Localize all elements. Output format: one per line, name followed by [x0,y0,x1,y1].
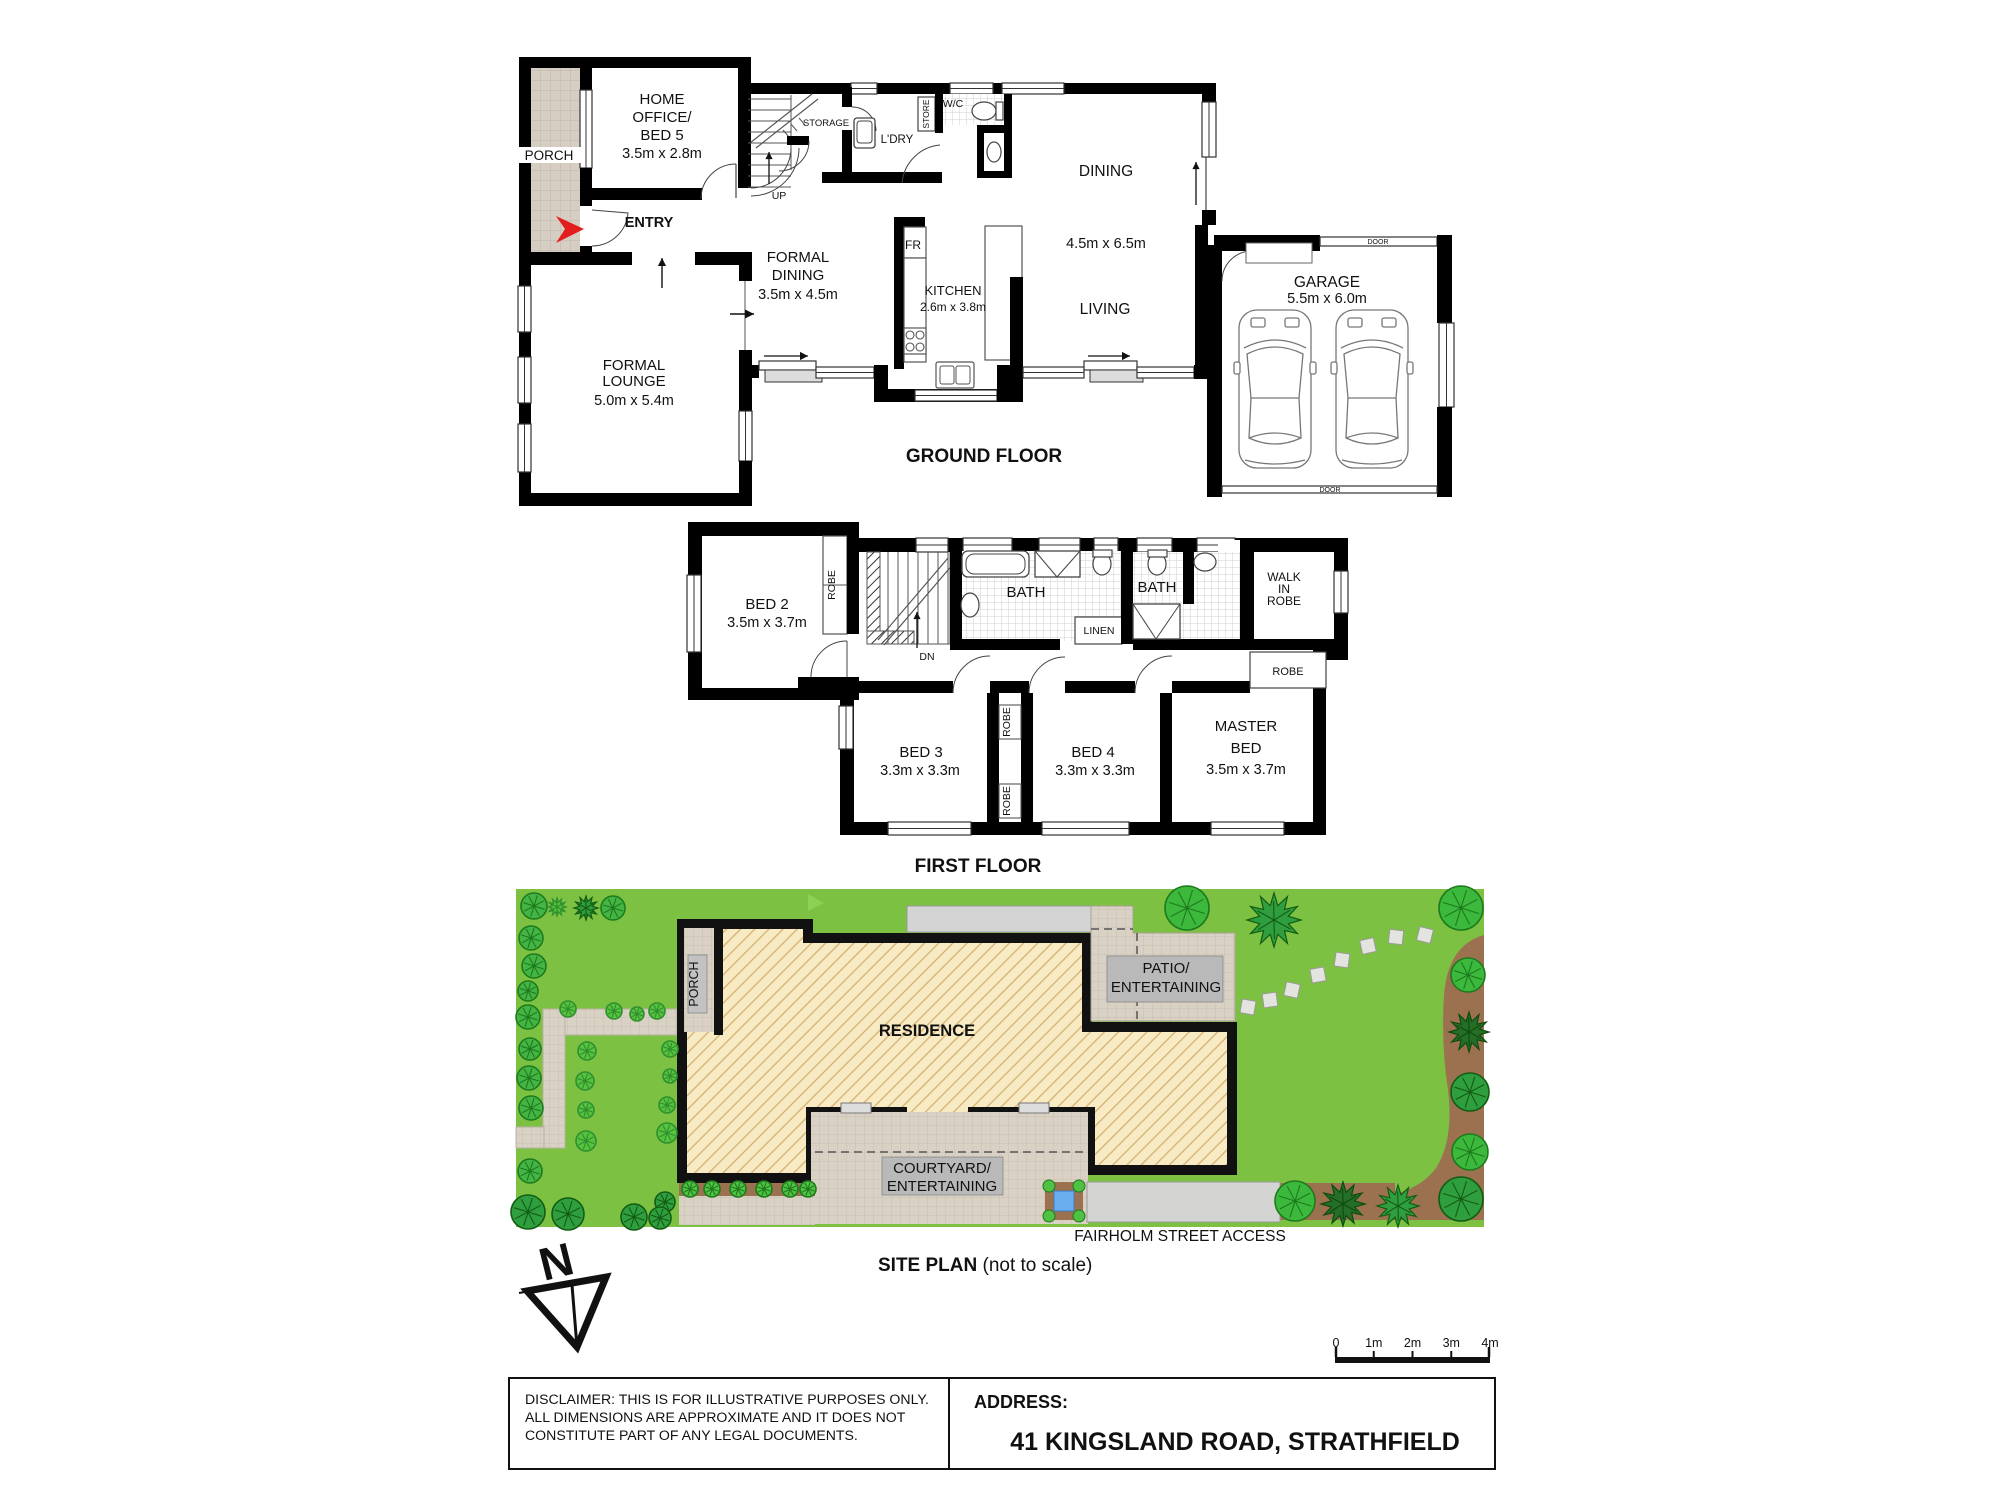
svg-text:5.0m x 5.4m: 5.0m x 5.4m [594,393,674,409]
svg-text:FR: FR [905,238,921,252]
svg-text:ENTRY: ENTRY [625,215,674,231]
svg-text:PORCH: PORCH [525,148,574,163]
svg-text:BATH: BATH [1007,584,1046,601]
svg-text:3.3m x 3.3m: 3.3m x 3.3m [1055,763,1135,779]
svg-text:ENTERTAINING: ENTERTAINING [887,1178,997,1195]
svg-text:GARAGE: GARAGE [1294,274,1360,291]
svg-text:2m: 2m [1404,1336,1421,1350]
svg-text:4m: 4m [1481,1336,1498,1350]
svg-text:HOME: HOME [640,91,685,108]
svg-text:L'DRY: L'DRY [881,134,914,146]
svg-text:3.5m x 2.8m: 3.5m x 2.8m [622,146,702,162]
svg-text:DINING: DINING [772,267,825,284]
svg-text:ADDRESS:: ADDRESS: [974,1392,1068,1412]
svg-text:3.5m x 4.5m: 3.5m x 4.5m [758,287,838,303]
svg-text:1m: 1m [1365,1336,1382,1350]
svg-text:PORCH: PORCH [687,961,701,1006]
svg-text:GROUND FLOOR: GROUND FLOOR [906,446,1062,467]
svg-text:BED 3: BED 3 [899,744,942,761]
svg-text:LIVING: LIVING [1080,301,1131,318]
svg-text:LINEN: LINEN [1084,625,1115,637]
svg-text:FIRST FLOOR: FIRST FLOOR [915,856,1042,877]
svg-text:OFFICE/: OFFICE/ [632,109,692,126]
svg-text:BED: BED [1231,740,1262,757]
svg-text:W/C: W/C [943,98,964,110]
svg-text:STORAGE: STORAGE [803,118,849,129]
svg-text:41 KINGSLAND ROAD, STRATHFIELD: 41 KINGSLAND ROAD, STRATHFIELD [1010,1428,1460,1456]
svg-text:FORMAL: FORMAL [767,249,830,266]
svg-text:ENTERTAINING: ENTERTAINING [1111,979,1221,996]
svg-text:BED 5: BED 5 [640,127,683,144]
svg-text:DINING: DINING [1079,163,1133,180]
svg-text:DOOR: DOOR [1320,487,1341,494]
svg-text:3.5m x 3.7m: 3.5m x 3.7m [1206,762,1286,778]
svg-text:LOUNGE: LOUNGE [602,373,665,390]
svg-text:3m: 3m [1443,1336,1460,1350]
svg-text:DN: DN [919,651,934,663]
svg-text:5.5m x 6.0m: 5.5m x 6.0m [1287,291,1367,307]
svg-text:ROBE: ROBE [1001,707,1013,737]
svg-text:FAIRHOLM STREET ACCESS: FAIRHOLM STREET ACCESS [1074,1228,1286,1245]
svg-text:COURTYARD/: COURTYARD/ [893,1160,992,1177]
svg-text:UP: UP [772,190,787,202]
svg-text:ALL DIMENSIONS ARE APPROXIMATE: ALL DIMENSIONS ARE APPROXIMATE AND IT DO… [525,1409,906,1425]
svg-text:SITE PLAN (not to scale): SITE PLAN (not to scale) [878,1255,1092,1276]
svg-text:3.3m x 3.3m: 3.3m x 3.3m [880,763,960,779]
svg-text:BED 2: BED 2 [745,596,788,613]
svg-text:PATIO/: PATIO/ [1143,960,1191,977]
svg-text:3.5m x 3.7m: 3.5m x 3.7m [727,615,807,631]
svg-text:DISCLAIMER: THIS IS FOR ILLUST: DISCLAIMER: THIS IS FOR ILLUSTRATIVE PUR… [525,1391,929,1407]
svg-text:ROBE: ROBE [1272,666,1303,678]
svg-text:BATH: BATH [1138,579,1177,596]
svg-text:STORE: STORE [921,99,931,128]
svg-text:DOOR: DOOR [1368,239,1389,246]
svg-text:FORMAL: FORMAL [603,357,666,374]
svg-text:ROBE: ROBE [1267,594,1301,608]
svg-text:2.6m x 3.8m: 2.6m x 3.8m [920,300,986,314]
svg-text:RESIDENCE: RESIDENCE [879,1022,975,1040]
svg-text:ROBE: ROBE [826,570,838,600]
svg-text:ROBE: ROBE [1001,786,1013,816]
svg-text:BED 4: BED 4 [1071,744,1114,761]
svg-text:0: 0 [1333,1336,1340,1350]
svg-text:MASTER: MASTER [1215,718,1278,735]
svg-text:4.5m x 6.5m: 4.5m x 6.5m [1066,236,1146,252]
svg-text:KITCHEN: KITCHEN [924,283,981,298]
svg-text:CONSTITUTE PART OF ANY LEGAL D: CONSTITUTE PART OF ANY LEGAL DOCUMENTS. [525,1427,858,1443]
